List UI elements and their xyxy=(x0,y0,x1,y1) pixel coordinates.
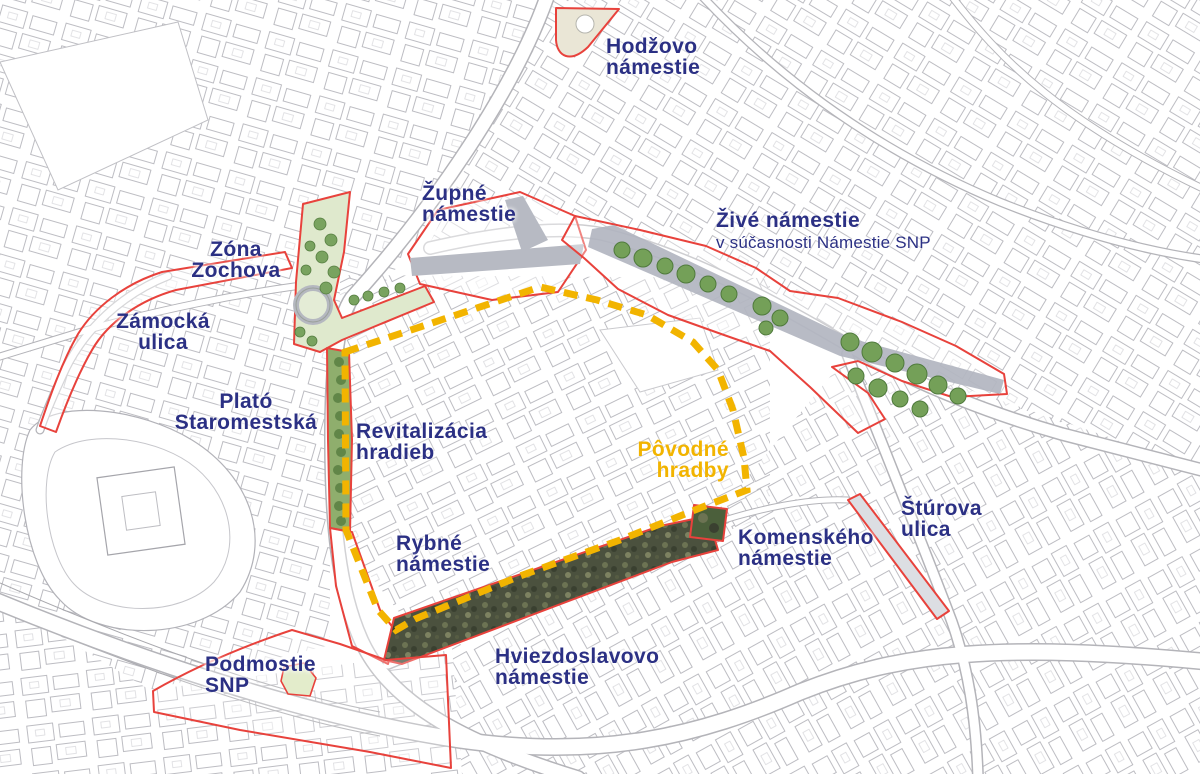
label-revitalizacia-hradieb: Revitalizácia hradieb xyxy=(356,421,487,464)
label-zupne-namestie: Župné námestie xyxy=(422,183,516,226)
label-komenskeho-namestie: Komenského námestie xyxy=(738,527,874,570)
label-zive-subtitle: v súčasnosti Námestie SNP xyxy=(716,234,931,251)
city-map-canvas: Hodžovo námestie Župné námestie Živé nám… xyxy=(0,0,1200,774)
label-hodzovo-namestie: Hodžovo námestie xyxy=(606,36,700,79)
label-hviezdoslavovo-namestie: Hviezdoslavovo námestie xyxy=(495,646,659,689)
label-povodne-hradby: Pôvodné hradby xyxy=(625,439,729,482)
label-zona-zochova: Zóna Zochova xyxy=(178,239,294,282)
label-rybne-namestie: Rybné námestie xyxy=(396,533,490,576)
label-zive-namestie: Živé námestie v súčasnosti Námestie SNP xyxy=(716,210,931,252)
label-podmostie-snp: Podmostie SNP xyxy=(205,654,316,697)
label-zamocka-ulica: Zámocká ulica xyxy=(101,311,225,354)
label-sturova-ulica: Štúrova ulica xyxy=(901,498,982,541)
label-plato-staromestska: Plató Staromestská xyxy=(164,391,328,434)
